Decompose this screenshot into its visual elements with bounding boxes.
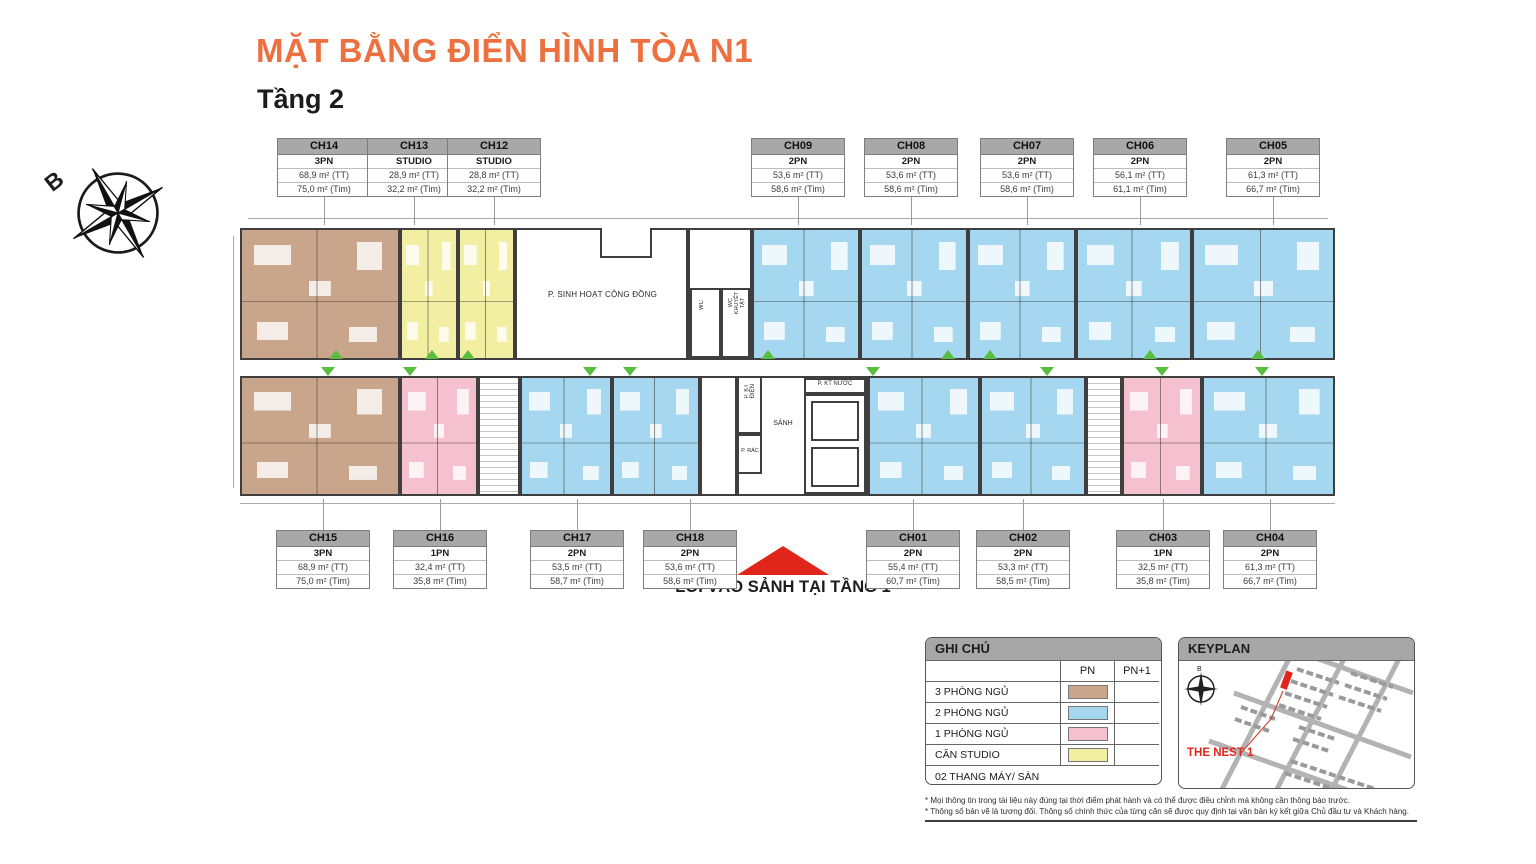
unit-code: CH17 [531,531,623,547]
unit-area-tim: 75,0 m² (Tim) [278,183,370,196]
entry-arrow-up-icon [329,350,343,359]
electrical-room-label: P. KT ĐIỆN [744,384,756,398]
unit-area-tim: 58,7 m² (Tim) [531,575,623,588]
balcony-line-left [233,236,234,488]
plan-unit-ch08 [860,228,968,360]
footer-note-1: * Mọi thông tin trong tài liệu này đúng … [925,795,1425,806]
entry-arrow-down-icon [623,367,637,376]
unit-area-tim: 58,6 m² (Tim) [752,183,844,196]
unit-label-ch04: CH042PN61,3 m² (TT)66,7 m² (Tim) [1223,530,1317,589]
unit-type: 2PN [1094,155,1186,169]
entry-arrow-up-icon [983,350,997,359]
unit-type: 2PN [752,155,844,169]
unit-type: 1PN [1117,547,1209,561]
unit-label-ch15: CH153PN68,9 m² (TT)75,0 m² (Tim) [276,530,370,589]
swatch-2pn [1068,706,1108,720]
unit-area-tim: 58,5 m² (Tim) [977,575,1069,588]
unit-type: 2PN [531,547,623,561]
unit-area-tt: 61,3 m² (TT) [1227,169,1319,183]
unit-label-ch05: CH052PN61,3 m² (TT)66,7 m² (Tim) [1226,138,1320,197]
plan-unit-ch02 [980,376,1086,496]
entry-arrow-up-icon [1251,350,1265,359]
unit-label-ch02: CH022PN53,3 m² (TT)58,5 m² (Tim) [976,530,1070,589]
unit-area-tim: 35,8 m² (Tim) [394,575,486,588]
label-connector [577,499,578,530]
plan-stairwell-east [1086,376,1122,496]
unit-area-tt: 32,5 m² (TT) [1117,561,1209,575]
unit-area-tim: 35,8 m² (Tim) [1117,575,1209,588]
unit-area-tt: 55,4 m² (TT) [867,561,959,575]
plan-unit-ch14 [240,228,400,360]
unit-code: CH04 [1224,531,1316,547]
floor-subtitle: Tầng 2 [257,84,344,115]
label-connector [323,499,324,530]
plan-unit-ch03 [1122,376,1202,496]
unit-code: CH12 [448,139,540,155]
compass-rose-icon [62,158,174,273]
plan-unit-ch15 [240,376,400,496]
unit-area-tt: 68,9 m² (TT) [278,169,370,183]
unit-area-tt: 53,3 m² (TT) [977,561,1069,575]
unit-type: 3PN [278,155,370,169]
unit-label-ch18: CH182PN53,6 m² (TT)58,6 m² (Tim) [643,530,737,589]
unit-area-tt: 28,8 m² (TT) [448,169,540,183]
plan-wc-cell [690,288,721,358]
unit-type: 2PN [865,155,957,169]
unit-label-ch09: CH092PN53,6 m² (TT)58,6 m² (Tim) [751,138,845,197]
unit-code: CH09 [752,139,844,155]
unit-code: CH05 [1227,139,1319,155]
entry-arrow-down-icon [1040,367,1054,376]
unit-area-tim: 60,7 m² (Tim) [867,575,959,588]
unit-area-tt: 53,6 m² (TT) [981,169,1073,183]
plan-landing [700,376,737,496]
unit-type: 2PN [644,547,736,561]
entry-arrow-down-icon [866,367,880,376]
balcony-line-bottom [240,503,1335,504]
trash-room-label: P. RÁC [736,448,764,454]
plan-unit-ch17 [520,376,612,496]
unit-label-ch03: CH031PN32,5 m² (TT)35,8 m² (Tim) [1116,530,1210,589]
water-room-label: P. KT NƯỚC [805,381,865,387]
unit-label-ch07: CH072PN53,6 m² (TT)58,6 m² (Tim) [980,138,1074,197]
plan-unit-ch05 [1192,228,1335,360]
label-connector [911,195,912,225]
unit-type: 2PN [1227,155,1319,169]
label-connector [494,195,495,225]
legend-table: PN PN+1 3 PHÒNG NGỦ 2 PHÒNG NGỦ 1 PHÒNG … [926,661,1161,766]
label-connector [690,499,691,530]
label-connector [324,195,325,225]
footer-note-2: * Thông số bản vẽ là tương đối. Thông số… [925,806,1425,817]
entry-arrow-up-icon [941,350,955,359]
unit-label-ch17: CH172PN53,5 m² (TT)58,7 m² (Tim) [530,530,624,589]
footer-rule [925,820,1417,822]
entry-arrow-up-icon [425,350,439,359]
keyplan-site-map: B [1179,661,1414,789]
unit-type: 2PN [867,547,959,561]
label-connector [1140,195,1141,225]
floorplan-page: MẶT BẰNG ĐIỂN HÌNH TÒA N1 Tầng 2 B [0,0,1536,864]
unit-area-tt: 53,5 m² (TT) [531,561,623,575]
unit-area-tim: 66,7 m² (Tim) [1224,575,1316,588]
plan-facade-notch [600,228,652,258]
legend-col-pn: PN [1061,661,1115,682]
unit-code: CH01 [867,531,959,547]
legend-row-3pn: 3 PHÒNG NGỦ [926,682,1061,703]
unit-label-ch01: CH012PN55,4 m² (TT)60,7 m² (Tim) [866,530,960,589]
unit-area-tim: 32,2 m² (Tim) [448,183,540,196]
wc-label: WC [699,300,705,310]
unit-area-tim: 58,6 m² (Tim) [981,183,1073,196]
unit-area-tt: 68,9 m² (TT) [277,561,369,575]
keyplan-compass-label: B [1197,666,1202,673]
plan-unit-ch01 [868,376,980,496]
swatch-studio [1068,748,1108,762]
unit-type: 1PN [394,547,486,561]
community-room-label: P. SINH HOẠT CỘNG ĐỒNG [520,290,685,299]
legend-title: GHI CHÚ [926,638,1161,661]
unit-type: 2PN [981,155,1073,169]
entry-arrow-down-icon [1255,367,1269,376]
lobby-label: SẢNH [762,420,804,427]
unit-area-tt: 61,3 m² (TT) [1224,561,1316,575]
entry-arrow-up-icon [1143,350,1157,359]
swatch-1pn [1068,727,1108,741]
unit-area-tim: 75,0 m² (Tim) [277,575,369,588]
plan-unit-ch07 [968,228,1076,360]
unit-area-tim: 58,6 m² (Tim) [865,183,957,196]
plan-unit-ch09 [752,228,860,360]
unit-code: CH06 [1094,139,1186,155]
plan-unit-ch18 [612,376,700,496]
entry-arrow-up-icon [461,350,475,359]
unit-type: STUDIO [448,155,540,169]
label-connector [1023,499,1024,530]
legend-row-1pn: 1 PHÒNG NGỦ [926,724,1061,745]
label-connector [440,499,441,530]
unit-area-tim: 58,6 m² (Tim) [644,575,736,588]
swatch-3pn [1068,685,1108,699]
unit-code: CH16 [394,531,486,547]
plan-elevator-car-2 [811,447,859,487]
page-title: MẶT BẰNG ĐIỂN HÌNH TÒA N1 [256,32,753,70]
unit-area-tt: 53,6 m² (TT) [752,169,844,183]
unit-area-tim: 66,7 m² (Tim) [1227,183,1319,196]
unit-code: CH15 [277,531,369,547]
unit-label-ch16: CH161PN32,4 m² (TT)35,8 m² (Tim) [393,530,487,589]
entry-arrow-down-icon [321,367,335,376]
plan-unit-ch13 [400,228,458,360]
unit-type: 2PN [977,547,1069,561]
plan-elevator-car-1 [811,401,859,441]
label-connector [913,499,914,530]
label-connector [414,195,415,225]
unit-type: 3PN [277,547,369,561]
unit-type: 2PN [1224,547,1316,561]
legend-footer: 02 THANG MÁY/ SÀN [926,766,1161,785]
unit-area-tim: 61,1 m² (Tim) [1094,183,1186,196]
unit-code: CH03 [1117,531,1209,547]
legend-col-pn1: PN+1 [1115,661,1159,682]
plan-trash-room [737,434,762,474]
unit-code: CH18 [644,531,736,547]
entry-arrow-down-icon [1155,367,1169,376]
label-connector [798,195,799,225]
plan-unit-ch12 [458,228,515,360]
legend-panel: GHI CHÚ PN PN+1 3 PHÒNG NGỦ 2 PHÒNG NGỦ … [925,637,1162,785]
balcony-line-top [248,218,1328,219]
plan-unit-ch04 [1202,376,1335,496]
label-connector [1027,195,1028,225]
plan-stairwell-west [478,376,520,496]
unit-label-ch06: CH062PN56,1 m² (TT)61,1 m² (Tim) [1093,138,1187,197]
label-connector [1163,499,1164,530]
entrance-arrow-icon [737,546,829,575]
unit-area-tt: 32,4 m² (TT) [394,561,486,575]
unit-code: CH07 [981,139,1073,155]
wc-disabled-label: WC KHUYẾT TẬT [728,292,746,314]
entry-arrow-down-icon [403,367,417,376]
unit-label-ch12: CH12STUDIO28,8 m² (TT)32,2 m² (Tim) [447,138,541,197]
unit-area-tt: 53,6 m² (TT) [865,169,957,183]
label-connector [1270,499,1271,530]
unit-label-ch08: CH082PN53,6 m² (TT)58,6 m² (Tim) [864,138,958,197]
unit-label-ch14: CH143PN68,9 m² (TT)75,0 m² (Tim) [277,138,371,197]
keyplan-panel: KEYPLAN [1178,637,1415,789]
keyplan-map: B THE NEST 1 [1179,661,1414,789]
unit-area-tt: 56,1 m² (TT) [1094,169,1186,183]
keyplan-title: KEYPLAN [1179,638,1414,661]
unit-code: CH08 [865,139,957,155]
unit-code: CH02 [977,531,1069,547]
keyplan-project-label: THE NEST 1 [1187,747,1253,759]
footer-notes: * Mọi thông tin trong tài liệu này đúng … [925,795,1425,817]
legend-row-2pn: 2 PHÒNG NGỦ [926,703,1061,724]
entry-arrow-down-icon [583,367,597,376]
entry-arrow-up-icon [761,350,775,359]
unit-area-tt: 53,6 m² (TT) [644,561,736,575]
label-connector [1273,195,1274,225]
plan-unit-ch06 [1076,228,1192,360]
plan-unit-ch16 [400,376,478,496]
unit-code: CH14 [278,139,370,155]
legend-row-studio: CĂN STUDIO [926,745,1061,766]
